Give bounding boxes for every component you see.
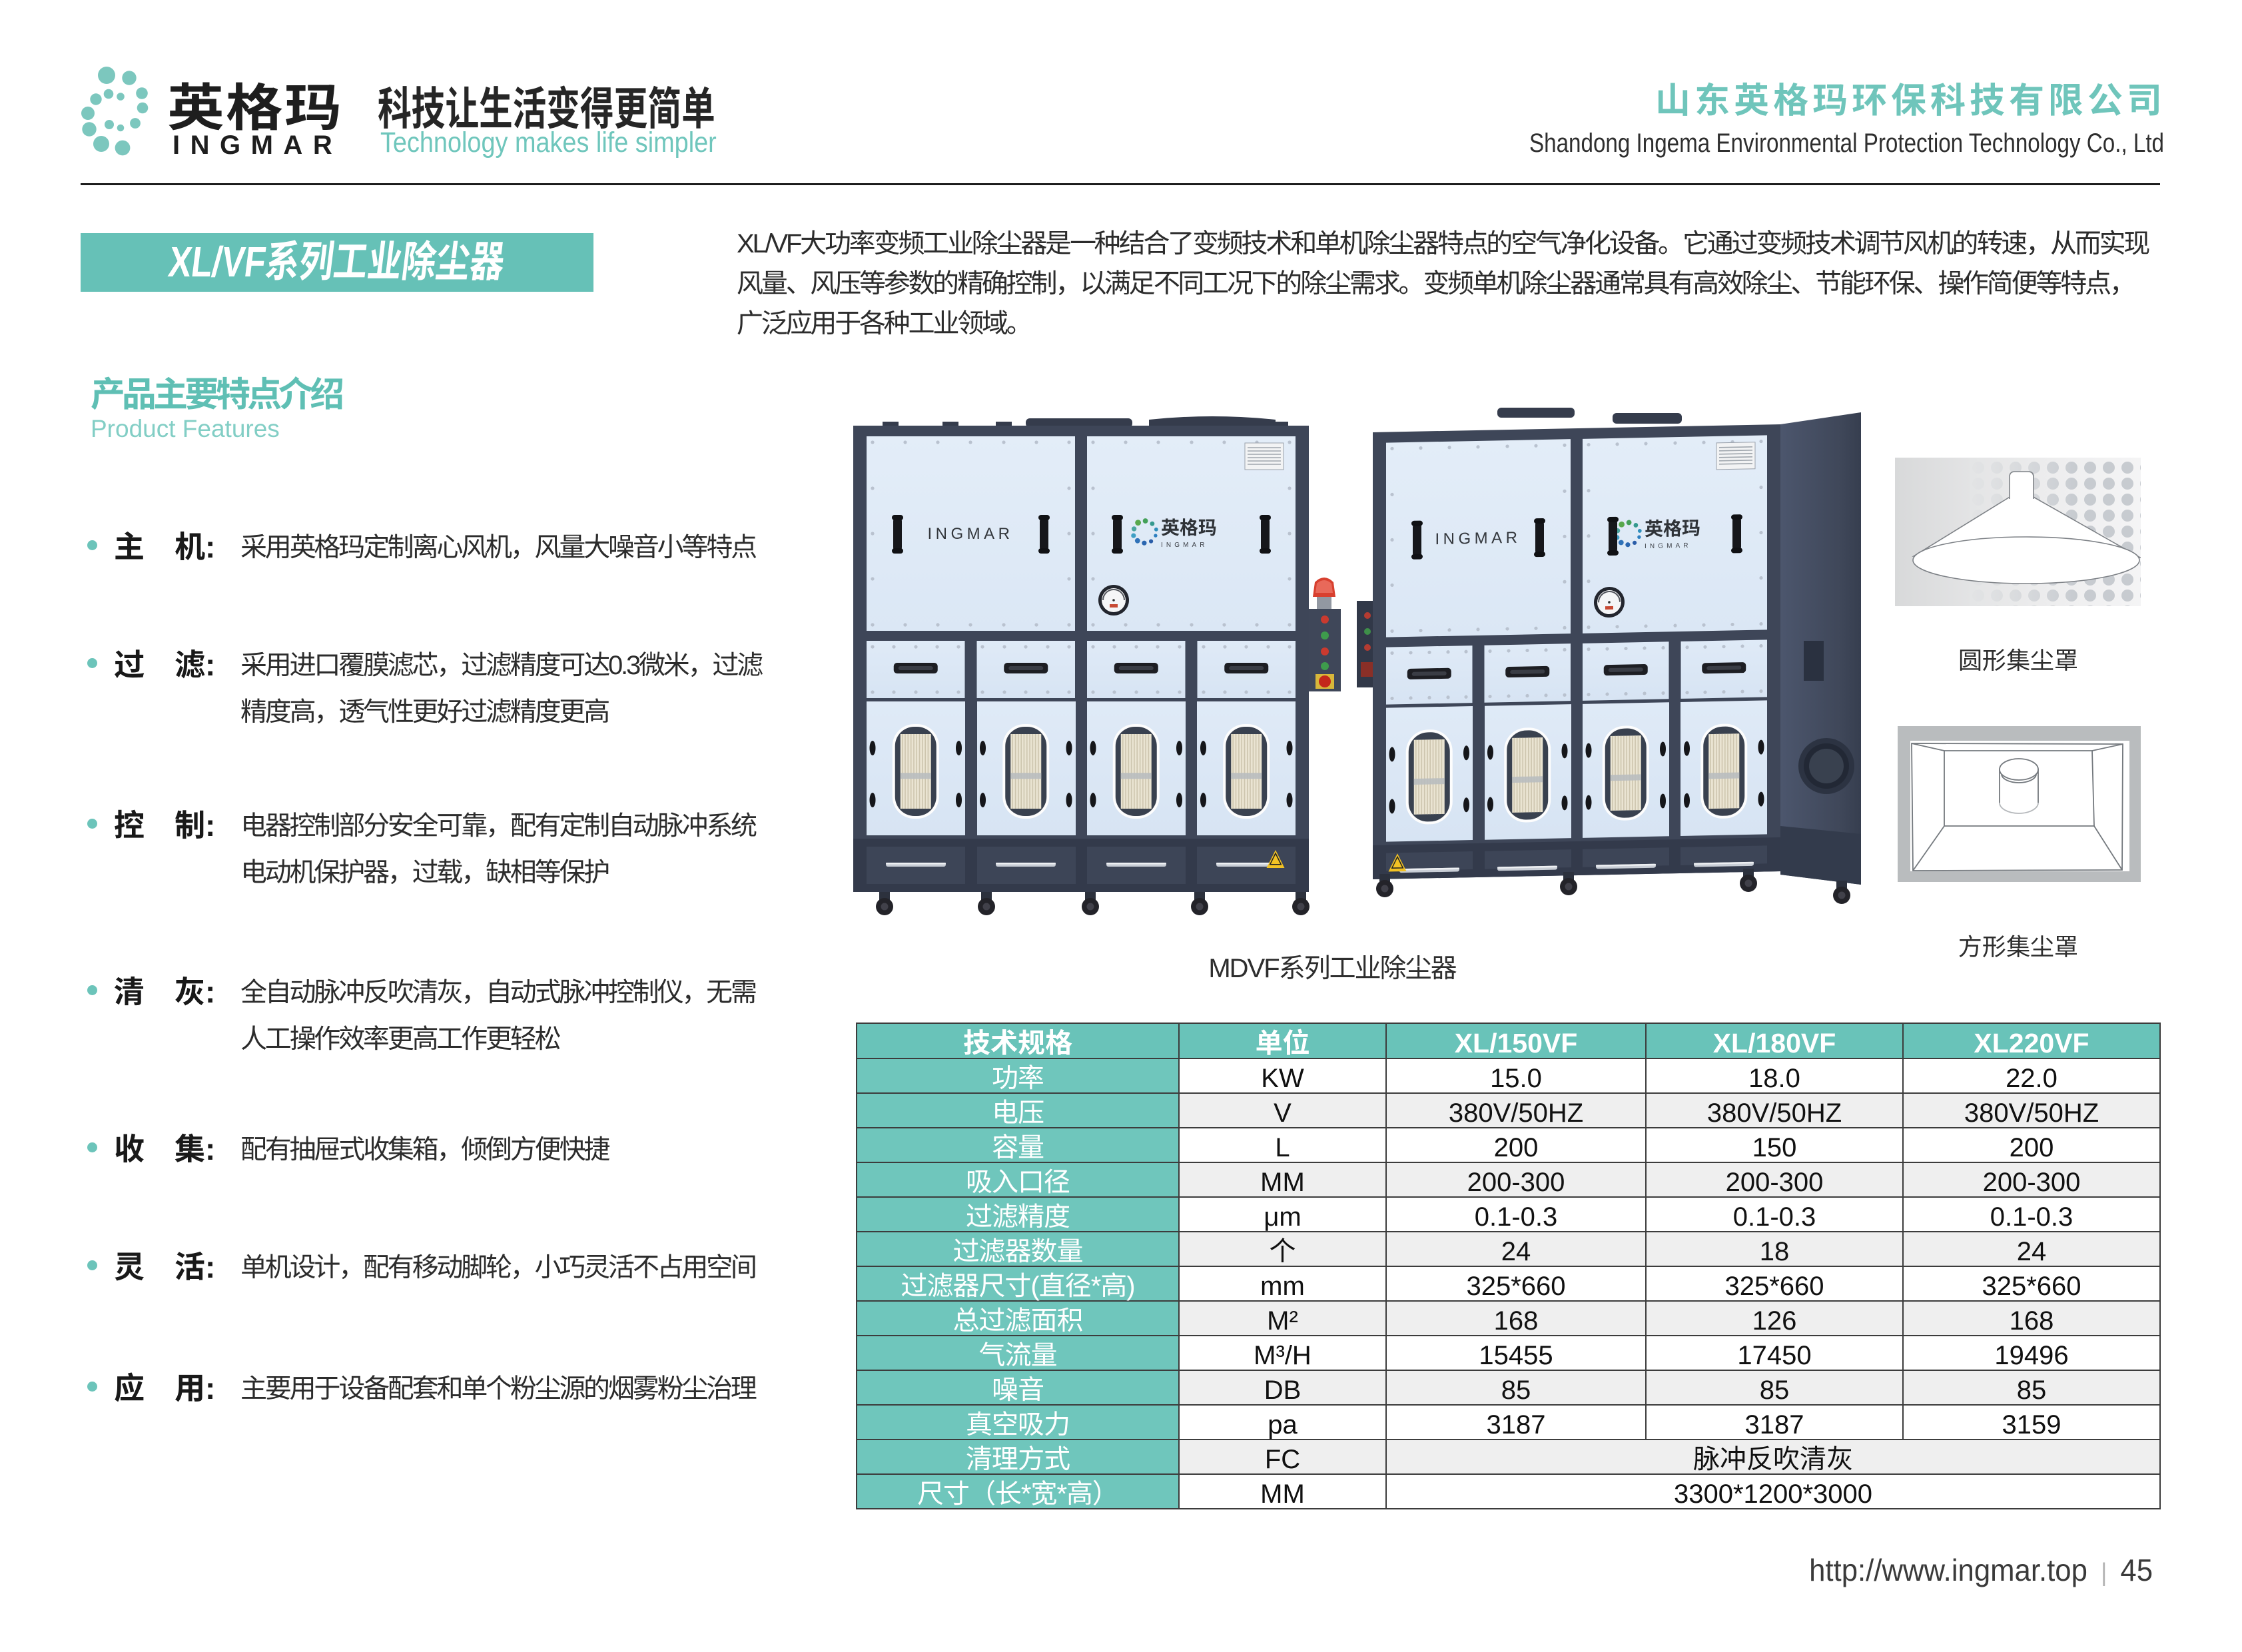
svg-text:英格玛: 英格玛 bbox=[1161, 514, 1217, 540]
svg-text:INGMAR: INGMAR bbox=[1161, 542, 1208, 549]
svg-text:INGMAR: INGMAR bbox=[1435, 529, 1521, 549]
svg-text:INGMAR: INGMAR bbox=[1645, 542, 1692, 550]
svg-text:英格玛: 英格玛 bbox=[1645, 514, 1700, 542]
svg-text:INGMAR: INGMAR bbox=[928, 525, 1014, 543]
